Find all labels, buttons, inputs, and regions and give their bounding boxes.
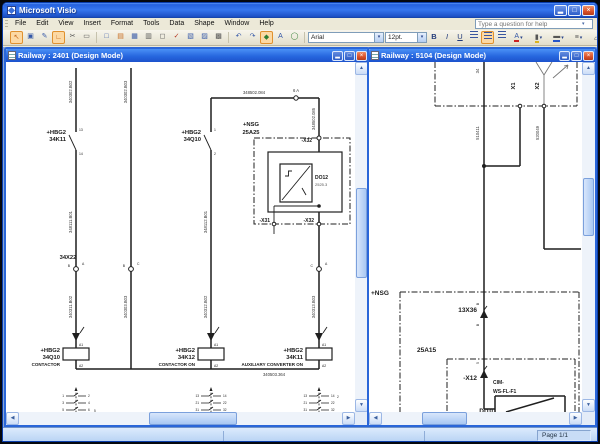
zoom-icon[interactable]: ◯ xyxy=(288,31,301,44)
chevron-down-icon[interactable]: ▾ xyxy=(520,35,523,41)
open-icon[interactable]: ▤ xyxy=(114,31,127,44)
terminal-connector[interactable] xyxy=(74,267,322,272)
vertical-scroll-thumb[interactable] xyxy=(356,188,367,278)
line-color-icon: ▬ xyxy=(553,33,560,42)
terminal-label: X1 xyxy=(511,82,517,90)
left-window-title: Railway : 2401 (Design Mode) xyxy=(18,51,331,60)
toolbar-separator xyxy=(304,32,305,43)
left-schematic: 340302.B02 340302.B03 348502.085 348111.… xyxy=(6,62,355,412)
device-label: +HBG2 xyxy=(47,130,67,136)
menu-view[interactable]: View xyxy=(53,18,78,30)
bold-button[interactable]: B xyxy=(428,31,440,44)
pin-label: C xyxy=(311,264,314,268)
device-label: 34K11 xyxy=(49,137,67,143)
wire-label: 340312.B02 xyxy=(203,295,208,318)
visio-application-window: Microsoft Visio ▂ □ × File Edit View Ins… xyxy=(2,2,598,442)
pin-label: 14 xyxy=(79,152,83,156)
device-label: 34K11 xyxy=(286,355,304,361)
device-label: WS-FL-F1 xyxy=(493,389,517,395)
a15-enclosure-box[interactable] xyxy=(447,359,575,412)
save-icon[interactable]: ▦ xyxy=(128,31,141,44)
right-window-body: 34 X1 X2 510411 520049 +NSG 13X36 B B 25… xyxy=(369,62,595,425)
align-right-icon[interactable] xyxy=(495,31,508,44)
xref-pin: 13 xyxy=(303,394,307,398)
device-label: 25A25 xyxy=(242,130,260,136)
xref-pin: 13 xyxy=(195,394,199,398)
stencil-icon[interactable]: ▣ xyxy=(24,31,37,44)
chevron-down-icon[interactable]: ▾ xyxy=(374,33,383,42)
document-icon xyxy=(371,51,379,60)
wire-label: 340302.B03 xyxy=(123,80,128,103)
xref-pin: 2 xyxy=(88,394,90,398)
wire-label: 340302.B02 xyxy=(68,80,73,103)
shadow-button[interactable]: ▱ ▾ xyxy=(589,31,598,44)
xref-pin: 22 xyxy=(223,401,227,405)
right-maximize-button[interactable]: □ xyxy=(571,51,582,61)
device-label: +NSG xyxy=(243,122,259,128)
wire-label: 348112.B01 xyxy=(203,210,208,233)
wire-label: 348502.084 xyxy=(243,90,266,95)
pin-label: 6 A xyxy=(293,88,299,93)
chevron-down-icon[interactable]: ▾ xyxy=(582,21,585,27)
xref-note: 2 xyxy=(337,395,339,399)
document-icon xyxy=(8,51,16,60)
device-function-label: CONTACTOR ON xyxy=(159,362,195,367)
app-close-button[interactable]: × xyxy=(582,5,595,16)
terminal-label: -X32 xyxy=(303,218,314,224)
terminal-label: -X32 xyxy=(301,138,312,144)
horizontal-scroll-thumb[interactable] xyxy=(149,412,237,425)
device-label: 25A15 xyxy=(417,347,437,354)
chevron-down-icon[interactable]: ▾ xyxy=(540,35,543,41)
wire-label: 340303.B03 xyxy=(123,295,128,318)
align-left-icon[interactable] xyxy=(467,31,480,44)
menubar-grip-handle[interactable] xyxy=(5,20,8,28)
wire-label: 348111.B01 xyxy=(68,210,73,233)
standard-toolbar: ↖ ▣ ✎ ∟ ✂ ▭ □ ▤ ▦ ▥ ◻ ✓ ▧ ▨ ▩ ↶ ↷ ◆ A ◯ … xyxy=(3,30,597,46)
xref-pin: 4 xyxy=(88,401,90,405)
scroll-down-icon[interactable]: ▼ xyxy=(582,399,595,412)
help-search-input[interactable] xyxy=(476,20,582,28)
app-title: Microsoft Visio xyxy=(19,6,554,15)
device-label: CIM- xyxy=(493,380,504,386)
pin-label: A xyxy=(82,262,85,266)
format-painter-icon[interactable]: ▩ xyxy=(212,31,225,44)
device-label: +HBG2 xyxy=(182,130,202,136)
device-function-label: AUXILIARY CONVERTER ON xyxy=(241,362,303,367)
right-drawing-canvas[interactable]: 34 X1 X2 510411 520049 +NSG 13X36 B B 25… xyxy=(369,62,582,412)
redo-icon[interactable]: ↷ xyxy=(246,31,259,44)
undo-icon[interactable]: ↶ xyxy=(232,31,245,44)
left-window-body: 340302.B02 340302.B03 348502.085 348111.… xyxy=(6,62,368,425)
scroll-left-icon[interactable]: ◀ xyxy=(369,412,382,425)
align-center-icon[interactable] xyxy=(481,31,494,44)
xref-pin: 22 xyxy=(331,401,335,405)
align-bars-icon xyxy=(498,31,506,38)
help-search-box: ▾ xyxy=(475,19,593,29)
right-minimize-button[interactable]: ▂ xyxy=(559,51,570,61)
x1-branch-wire[interactable] xyxy=(484,104,522,166)
contact-xref-34k11[interactable] xyxy=(309,387,329,412)
line-color-button[interactable]: ▬ ▾ xyxy=(549,31,568,44)
menu-data[interactable]: Data xyxy=(164,18,189,30)
pen-icon[interactable]: ✎ xyxy=(38,31,51,44)
top-feed-wire[interactable] xyxy=(211,96,319,100)
new-document-icon[interactable]: □ xyxy=(100,31,113,44)
pin-label: B xyxy=(476,302,480,305)
pin-label: A1 xyxy=(214,343,218,347)
toolbar-separator xyxy=(96,32,97,43)
font-size-value: 12pt. xyxy=(388,34,402,41)
paste-icon[interactable]: ▨ xyxy=(198,31,211,44)
pin-label: A2 xyxy=(79,364,83,368)
device-label: 34X22 xyxy=(60,255,77,261)
pin-label: B xyxy=(68,264,71,268)
app-maximize-button[interactable]: □ xyxy=(568,5,581,16)
pin-label: 13 xyxy=(79,128,83,132)
print-preview-icon[interactable]: ◻ xyxy=(156,31,169,44)
left-window-titlebar[interactable]: Railway : 2401 (Design Mode) ▂ □ × xyxy=(6,49,368,62)
xref-pin: 21 xyxy=(303,401,307,405)
text-color-icon: A xyxy=(514,33,519,42)
ink-tool-icon[interactable]: ◆ xyxy=(260,31,273,44)
left-minimize-button[interactable]: ▂ xyxy=(332,51,343,61)
font-name-value: Arial xyxy=(311,34,324,41)
pin-label: A1 xyxy=(79,343,83,347)
wire-label: 340311.B02 xyxy=(68,295,73,318)
line-weight-button[interactable]: ≡ ▾ xyxy=(569,31,588,44)
mdi-workspace: Railway : 2401 (Design Mode) ▂ □ × xyxy=(3,47,597,427)
di10-module[interactable] xyxy=(495,396,565,412)
terminal-label: -X31 xyxy=(259,218,270,224)
vertical-scroll-thumb[interactable] xyxy=(583,178,594,236)
wire-label: 510411 xyxy=(475,126,480,140)
fill-color-icon: ▮ xyxy=(535,33,539,43)
device-label: +HBG2 xyxy=(176,348,196,354)
chevron-down-icon[interactable]: ▾ xyxy=(417,33,426,42)
terminal-label: -X12 xyxy=(463,375,477,382)
cut-icon[interactable]: ✂ xyxy=(66,31,79,44)
align-bars-icon xyxy=(470,31,478,38)
text-color-button[interactable]: A ▾ xyxy=(509,31,528,44)
pin-label: A1 xyxy=(322,343,326,347)
device-label: 34Q10 xyxy=(43,355,60,361)
device-label: +HBG2 xyxy=(284,348,304,354)
device-function-label: CONTACTOR xyxy=(32,362,61,367)
device-label: +NSG xyxy=(371,290,389,297)
app-titlebar[interactable]: Microsoft Visio ▂ □ × xyxy=(3,3,597,18)
xref-pin: 21 xyxy=(195,401,199,405)
menubar: File Edit View Insert Format Tools Data … xyxy=(3,18,597,30)
wire-label: 340313.B03 xyxy=(311,295,316,318)
scroll-right-icon[interactable]: ▶ xyxy=(342,412,355,425)
left-drawing-canvas[interactable]: 340302.B02 340302.B03 348502.085 348111.… xyxy=(6,62,355,412)
upper-enclosure-box[interactable] xyxy=(435,62,577,106)
device-label: DO12 xyxy=(315,175,328,181)
right-vertical-scrollbar[interactable]: ▲ ▼ xyxy=(582,62,595,412)
pin-label: B xyxy=(476,323,480,326)
right-window-titlebar[interactable]: Railway : 5104 (Design Mode) ▂ □ × xyxy=(369,49,595,62)
chevron-down-icon[interactable]: ▾ xyxy=(561,35,564,41)
left-drawing-window: Railway : 2401 (Design Mode) ▂ □ × xyxy=(4,47,370,427)
right-horizontal-scrollbar[interactable]: ◀ ▶ xyxy=(369,412,582,425)
left-maximize-button[interactable]: □ xyxy=(344,51,355,61)
device-sublabel: 2525.3 xyxy=(315,182,328,187)
contact-xref-34q10[interactable] xyxy=(66,387,86,412)
pin-label: A2 xyxy=(322,364,326,368)
pin-label: A2 xyxy=(214,364,218,368)
pointer-tool-icon[interactable]: ↖ xyxy=(10,31,23,44)
font-name-combo[interactable]: Arial ▾ xyxy=(308,32,384,43)
menu-window[interactable]: Window xyxy=(219,18,254,30)
line-weight-icon: ≡ xyxy=(575,34,579,41)
device-label: 13X36 xyxy=(458,307,477,314)
right-drawing-window: Railway : 5104 (Design Mode) ▂ □ × xyxy=(367,47,597,427)
terminal-label: X2 xyxy=(535,82,541,89)
wire-label: 348502.085 xyxy=(311,107,316,130)
font-size-combo[interactable]: 12pt. ▾ xyxy=(385,32,427,43)
chevron-down-icon[interactable]: ▾ xyxy=(580,35,583,41)
scroll-right-icon[interactable]: ▶ xyxy=(569,412,582,425)
copy-icon[interactable]: ▧ xyxy=(184,31,197,44)
pin-label: 34 xyxy=(475,68,480,73)
toolbar-separator xyxy=(228,32,229,43)
spelling-icon[interactable]: ✓ xyxy=(170,31,183,44)
align-bars-icon xyxy=(484,32,492,39)
xref-pin: 1 xyxy=(62,394,64,398)
underline-button[interactable]: U xyxy=(454,31,466,44)
wire-label: 520049 xyxy=(535,125,540,140)
italic-button[interactable]: I xyxy=(441,31,453,44)
xref-pin: 14 xyxy=(223,394,227,398)
device-label: +HBG2 xyxy=(41,348,61,354)
menu-help[interactable]: Help xyxy=(254,18,278,30)
menu-tools[interactable]: Tools xyxy=(138,18,164,30)
scroll-left-icon[interactable]: ◀ xyxy=(6,412,19,425)
pin-label: 1 xyxy=(214,128,216,132)
wire-label: 340503.364 xyxy=(263,372,286,377)
pin-label: 2 xyxy=(214,152,216,156)
pin-label: C xyxy=(137,262,140,266)
connector-tool-icon[interactable]: ∟ xyxy=(52,31,65,44)
menu-file[interactable]: File xyxy=(10,18,31,30)
horizontal-scroll-thumb[interactable] xyxy=(422,412,467,425)
visio-app-icon xyxy=(7,6,16,15)
page-indicator: Page 1/1 xyxy=(537,430,591,441)
scroll-up-icon[interactable]: ▲ xyxy=(582,62,595,75)
text-tool-icon[interactable]: A xyxy=(274,31,287,44)
xref-pin: 3 xyxy=(62,401,64,405)
x2-branch-wire[interactable] xyxy=(542,104,581,249)
scrollbar-corner xyxy=(582,412,595,425)
right-schematic: 34 X1 X2 510411 520049 +NSG 13X36 B B 25… xyxy=(369,62,581,412)
contact-xref-34k12[interactable] xyxy=(201,387,221,412)
menu-shape[interactable]: Shape xyxy=(189,18,219,30)
app-minimize-button[interactable]: ▂ xyxy=(554,5,567,16)
left-close-button[interactable]: × xyxy=(356,51,367,61)
pin-label: B xyxy=(123,264,126,268)
menu-edit[interactable]: Edit xyxy=(31,18,53,30)
right-window-title: Railway : 5104 (Design Mode) xyxy=(381,51,558,60)
menu-insert[interactable]: Insert xyxy=(78,18,106,30)
print-icon[interactable]: ▥ xyxy=(142,31,155,44)
left-horizontal-scrollbar[interactable]: ◀ ▶ xyxy=(6,412,355,425)
device-label: 34K12 xyxy=(178,355,195,361)
eraser-icon[interactable]: ▭ xyxy=(80,31,93,44)
shadow-icon: ▱ xyxy=(594,34,598,42)
xref-pin: 14 xyxy=(331,394,335,398)
main-wire[interactable] xyxy=(482,62,495,409)
fill-color-button[interactable]: ▮ ▾ xyxy=(529,31,548,44)
pin-label: 5 xyxy=(476,362,480,364)
menu-format[interactable]: Format xyxy=(106,18,138,30)
status-divider xyxy=(223,431,224,441)
device-label: 34Q10 xyxy=(184,137,201,143)
status-bar: Page 1/1 xyxy=(3,427,597,442)
pin-label: A xyxy=(325,262,328,266)
right-close-button[interactable]: × xyxy=(583,51,594,61)
status-divider xyxy=(424,431,425,441)
